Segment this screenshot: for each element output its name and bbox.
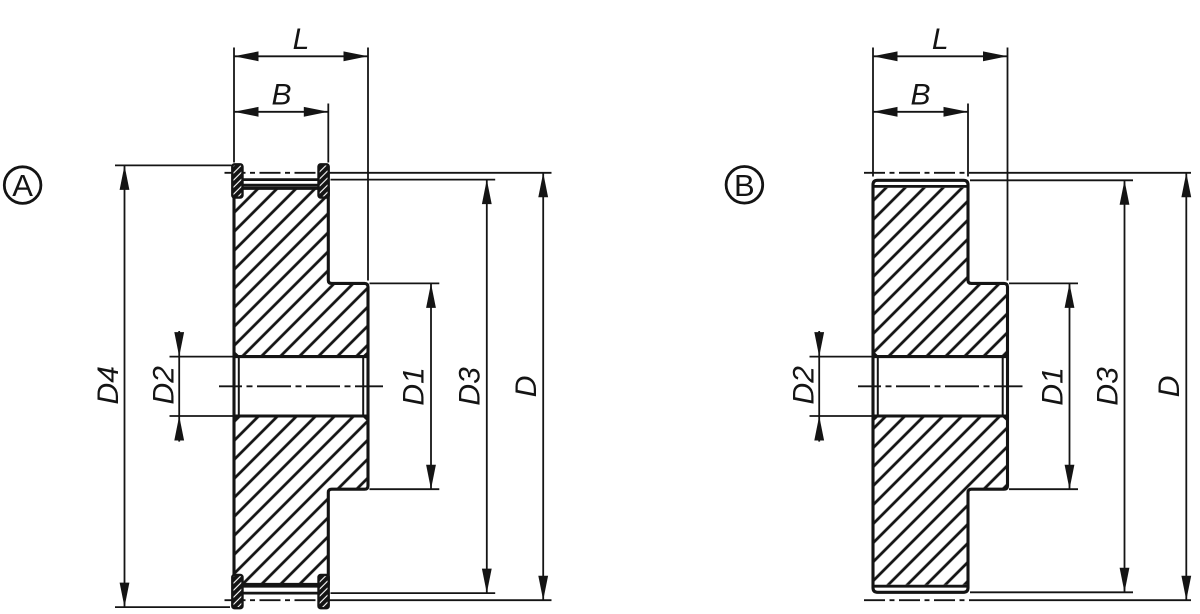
svg-text:D2: D2 xyxy=(148,366,181,405)
svg-text:B: B xyxy=(910,78,930,111)
svg-text:B: B xyxy=(734,168,755,203)
svg-text:D: D xyxy=(510,376,543,398)
svg-text:D4: D4 xyxy=(92,366,125,404)
svg-text:A: A xyxy=(12,168,33,203)
svg-text:D3: D3 xyxy=(454,367,487,406)
svg-text:D: D xyxy=(1153,376,1186,398)
svg-text:D1: D1 xyxy=(398,367,431,405)
svg-text:D2: D2 xyxy=(788,366,821,405)
svg-text:D3: D3 xyxy=(1091,367,1124,406)
svg-text:B: B xyxy=(271,78,291,111)
svg-text:L: L xyxy=(293,23,310,56)
svg-text:L: L xyxy=(932,23,949,56)
svg-text:D1: D1 xyxy=(1036,367,1069,405)
